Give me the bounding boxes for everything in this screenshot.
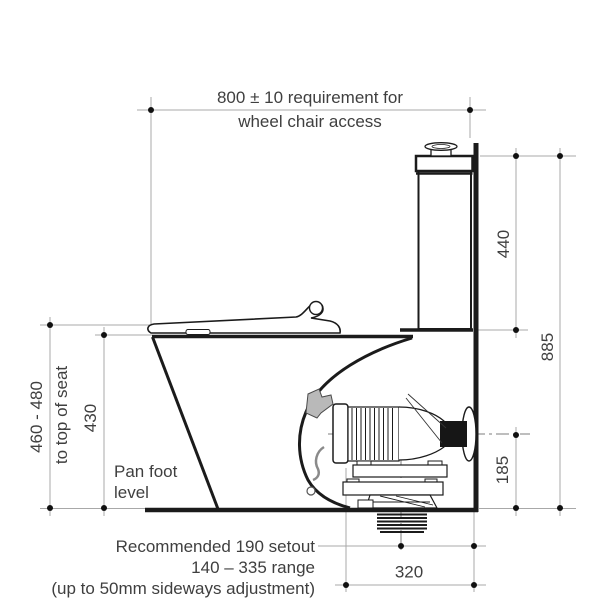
toilet-seat xyxy=(148,302,340,335)
outlet-seal xyxy=(440,421,467,447)
seat-hinge xyxy=(310,302,323,315)
dimension-dots xyxy=(47,107,563,588)
pan-foot-line1: Pan foot xyxy=(114,461,177,482)
cistern-lid xyxy=(416,156,473,171)
cistern xyxy=(400,143,473,330)
cistern-body xyxy=(419,170,472,329)
pan-foot-line2: level xyxy=(114,482,177,503)
trap-lower-plate xyxy=(343,482,443,495)
wheelchair-access-label: wheel chair access xyxy=(238,111,382,132)
setout-range-label: 140 – 335 range xyxy=(51,557,315,578)
wall-clearance-label: 320 xyxy=(395,562,423,583)
setout-adjustment-label: (up to 50mm sideways adjustment) xyxy=(51,578,315,599)
dimension-lines xyxy=(40,97,576,592)
bellows-body xyxy=(348,407,399,461)
trap-upper-plate xyxy=(353,465,447,477)
installation-diagram: 800 ± 10 requirement for wheel chair acc… xyxy=(0,0,600,600)
flush-button xyxy=(425,143,457,156)
setout-recommended-label: Recommended 190 setout xyxy=(51,536,315,557)
top-dimension-label: 800 ± 10 requirement for xyxy=(217,87,403,108)
outlet-connector xyxy=(333,394,476,463)
floor-flange-ribs xyxy=(377,515,427,533)
overall-height-label: 885 xyxy=(538,333,558,361)
outlet-centre-height-label: 185 xyxy=(493,456,513,484)
seat-height-range-label: 460 - 480 xyxy=(27,381,47,453)
connector-housing xyxy=(399,407,444,460)
setout-notes: Recommended 190 setout 140 – 335 range (… xyxy=(51,536,315,599)
cistern-height-label: 440 xyxy=(494,230,514,258)
flush-hose xyxy=(313,447,324,480)
connector-front-flange xyxy=(333,404,348,463)
pan-foot-level-label: Pan foot level xyxy=(114,461,177,503)
floor-trap xyxy=(343,461,447,532)
fixing-bracket xyxy=(306,389,333,418)
fixing-hole xyxy=(307,487,315,495)
seat-height-caption-label: to top of seat xyxy=(52,366,72,464)
seat-bumper xyxy=(186,330,210,335)
rim-height-label: 430 xyxy=(81,404,101,432)
